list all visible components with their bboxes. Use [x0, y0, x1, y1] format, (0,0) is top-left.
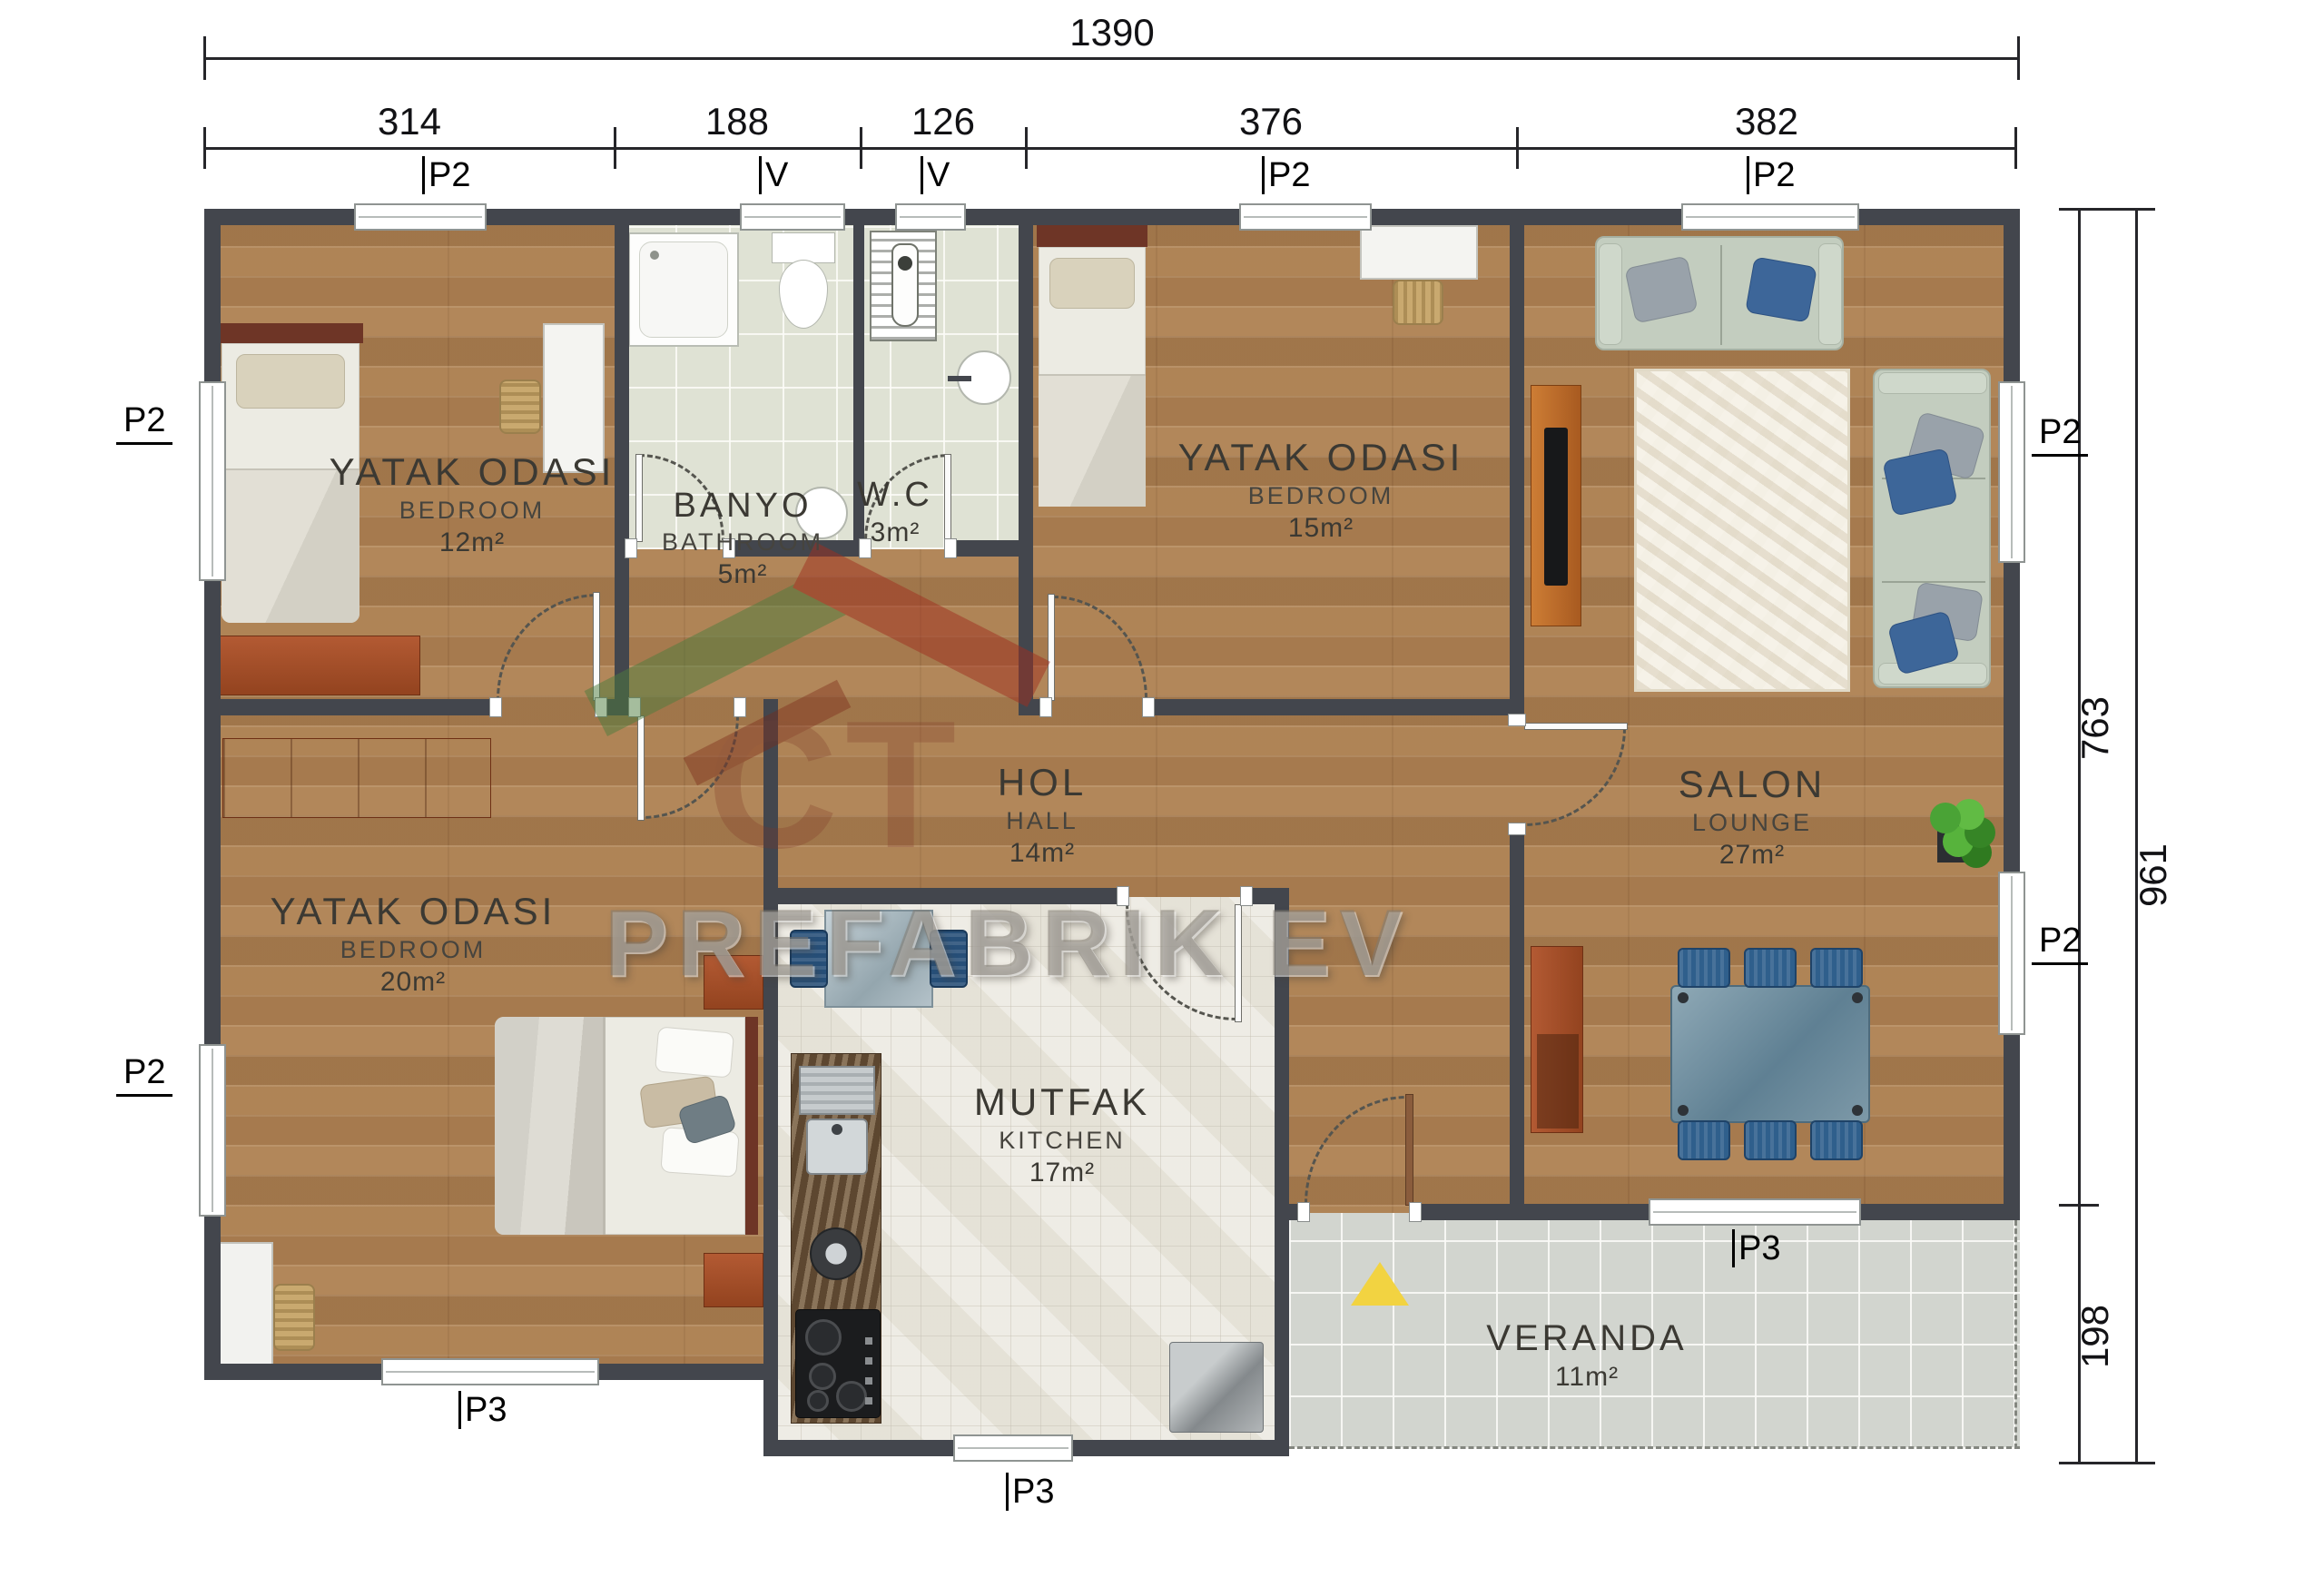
dim-tick — [614, 127, 616, 169]
marker-text: P2 — [1753, 156, 1795, 194]
bed-pillow — [655, 1026, 734, 1078]
wardrobe-icon — [222, 738, 491, 818]
window-label-p2-top: P2 — [1747, 156, 1795, 195]
dim-tick — [2014, 127, 2017, 169]
room-name-en: HALL — [888, 807, 1196, 835]
window — [199, 1044, 226, 1217]
sofa-armrest — [1599, 243, 1622, 345]
single-bed-icon — [1037, 225, 1147, 507]
door-swing-arc — [497, 594, 598, 699]
marker-tick-icon — [921, 156, 923, 194]
bed-pillow — [1049, 258, 1135, 309]
room-name-en: BEDROOM — [259, 936, 567, 964]
table-corner — [1678, 992, 1689, 1003]
window-label-p2-left: P2 — [116, 401, 172, 445]
window-label-p2-right: P2 — [2032, 922, 2088, 965]
dining-chair-icon — [1810, 1120, 1863, 1160]
room-label-veranda: VERANDA 11m² — [1433, 1318, 1741, 1393]
dim-top-total: 1390 — [1021, 11, 1203, 54]
door-jamb — [1508, 714, 1526, 726]
room-name: YATAK ODASI — [259, 890, 567, 933]
sofa-seam — [1720, 245, 1722, 345]
marker-text: P3 — [1738, 1229, 1780, 1267]
marker-text: V — [765, 156, 788, 194]
window — [953, 1434, 1073, 1462]
tap — [948, 376, 971, 381]
room-label-hall: HOL HALL 14m² — [888, 761, 1196, 869]
door-swing-arc — [1126, 904, 1236, 1020]
plant-icon — [1928, 797, 1990, 886]
window — [1649, 1198, 1861, 1226]
door-jamb — [1142, 697, 1155, 717]
rug-icon — [1634, 369, 1850, 692]
kettle-icon — [810, 1227, 862, 1280]
marker-text: P2 — [2039, 413, 2081, 451]
burner — [836, 1381, 867, 1412]
wall — [1510, 827, 1524, 1220]
dim-line-top-segments — [204, 147, 2016, 150]
drainboard — [799, 1066, 875, 1115]
room-name: HOL — [888, 761, 1196, 804]
door-jamb — [1117, 886, 1129, 906]
window — [199, 381, 226, 581]
window-label-p3-veranda: P3 — [1732, 1229, 1780, 1268]
dim-segment: 188 — [646, 100, 828, 143]
veranda-open-edge-right — [2014, 1220, 2017, 1449]
dim-segment: 376 — [1180, 100, 1362, 143]
window — [381, 1358, 599, 1385]
window-label-p2-right: P2 — [2032, 413, 2088, 457]
wall — [1019, 209, 1033, 715]
room-name: SALON — [1598, 763, 1906, 806]
veranda-triangle-icon — [1351, 1262, 1409, 1306]
plant-leaves — [1930, 803, 1961, 833]
room-name: YATAK ODASI — [318, 450, 626, 494]
washbasin-icon — [957, 350, 1011, 405]
bed-headboard — [743, 1017, 758, 1235]
room-area: 11m² — [1433, 1362, 1741, 1393]
table-corner — [1852, 992, 1863, 1003]
window — [740, 203, 845, 231]
room-label-salon: SALON LOUNGE 27m² — [1598, 763, 1906, 871]
marker-tick-icon — [1732, 1229, 1735, 1267]
marker-text: P3 — [465, 1391, 507, 1429]
sofa-pillow-blue — [1745, 256, 1817, 322]
wall — [1510, 209, 1524, 722]
chair-icon — [273, 1284, 315, 1351]
marker-text: P2 — [123, 401, 165, 439]
wall — [204, 699, 497, 715]
door-leaf — [1048, 594, 1055, 701]
room-name: W.C — [750, 476, 1040, 515]
double-bed-icon — [495, 1013, 758, 1238]
stove-knobs — [865, 1325, 872, 1405]
window — [1239, 203, 1372, 231]
nightstand-icon — [704, 955, 763, 1010]
room-name-en: BEDROOM — [318, 497, 626, 525]
window-label-p3-bottom: P3 — [458, 1391, 507, 1430]
window — [354, 203, 487, 231]
door-swing-arc — [1305, 1096, 1407, 1204]
bed-pillow — [236, 354, 345, 409]
wall — [2004, 209, 2020, 1220]
marker-tick-icon — [759, 156, 762, 194]
room-area: 14m² — [888, 838, 1196, 869]
dining-chair-icon — [1678, 948, 1730, 988]
dim-right-total: 961 — [2132, 821, 2175, 930]
desk-icon — [1360, 225, 1478, 280]
door-jamb — [1409, 1202, 1422, 1222]
wall — [763, 699, 778, 1456]
sideboard-icon — [1531, 946, 1583, 1133]
tv-stand-icon — [1531, 385, 1581, 626]
shower-tray-icon — [628, 232, 739, 347]
toilet-tank — [772, 232, 835, 263]
marker-tick-icon — [422, 156, 425, 194]
room-label-kitchen: MUTFAK KITCHEN 17m² — [908, 1080, 1216, 1188]
sofa-icon — [1873, 369, 1991, 688]
dim-segment: 126 — [852, 100, 1034, 143]
window — [895, 203, 966, 231]
room-area: 27m² — [1598, 840, 1906, 871]
door-jamb — [489, 697, 502, 717]
dim-tick — [2059, 208, 2155, 211]
burner — [807, 1390, 829, 1412]
marker-tick-icon — [1262, 156, 1265, 194]
window-label-p2-top: P2 — [422, 156, 470, 195]
stove-icon — [795, 1309, 881, 1418]
stool-icon — [499, 379, 541, 434]
burner — [805, 1319, 842, 1355]
dim-line-top-total — [204, 57, 2020, 60]
marker-tick-icon — [1006, 1473, 1009, 1511]
veranda-open-edge-bottom — [1289, 1446, 2020, 1449]
kitchen-sink-icon — [799, 1066, 875, 1182]
marker-text: P2 — [428, 156, 470, 194]
floor-plan-page: CT PREFABRIK EV YATAK ODASI BEDROOM 12m²… — [0, 0, 2324, 1587]
dim-right-upper: 763 — [2073, 674, 2117, 783]
dim-tick — [1516, 127, 1519, 169]
room-name-en: BEDROOM — [1167, 482, 1475, 510]
table-corner — [1852, 1105, 1863, 1116]
wall — [1275, 888, 1289, 1456]
door-jamb — [1297, 1202, 1310, 1222]
burner — [809, 1363, 836, 1390]
toilet-icon — [772, 232, 835, 332]
dining-chair-icon — [1744, 948, 1797, 988]
window — [1681, 203, 1859, 231]
dining-chair-icon — [1678, 1120, 1730, 1160]
sofa-pillow-gray — [1624, 255, 1698, 323]
dining-chair-icon — [1810, 948, 1863, 988]
door-jamb — [595, 697, 607, 717]
marker-text: V — [927, 156, 950, 194]
dim-segment: 382 — [1676, 100, 1857, 143]
room-area: 17m² — [908, 1158, 1216, 1188]
window — [1998, 381, 2025, 563]
room-area: 12m² — [318, 527, 626, 558]
dining-chair-icon — [1744, 1120, 1797, 1160]
chair-icon — [1393, 280, 1443, 325]
room-label-bedroom2: YATAK ODASI BEDROOM 15m² — [1167, 436, 1475, 544]
bed-duvet — [495, 1017, 606, 1235]
room-name: MUTFAK — [908, 1080, 1216, 1124]
dim-tick — [2059, 1462, 2155, 1464]
door-leaf — [1524, 723, 1628, 730]
door-swing-arc — [643, 715, 739, 819]
faucet — [832, 1124, 842, 1135]
toilet-bowl — [779, 260, 828, 329]
window — [1998, 872, 2025, 1035]
marker-tick-icon — [458, 1391, 461, 1429]
room-area: 15m² — [1167, 513, 1475, 544]
room-name: YATAK ODASI — [1167, 436, 1475, 479]
door-jamb — [1240, 886, 1253, 906]
bed-headboard — [1037, 225, 1147, 247]
doormat-icon — [1169, 1342, 1264, 1433]
sofa-armrest — [1818, 243, 1842, 345]
room-area: 20m² — [259, 967, 567, 998]
squat-toilet-icon — [870, 231, 937, 341]
door-jamb — [734, 697, 746, 717]
marker-text: P3 — [1012, 1473, 1054, 1511]
door-jamb — [1508, 823, 1526, 835]
marker-text: P2 — [1268, 156, 1310, 194]
window-label-v-top: V — [759, 156, 788, 195]
sofa-icon — [1595, 236, 1844, 350]
door-swing-arc — [1053, 596, 1147, 699]
nightstand-icon — [704, 1253, 763, 1307]
dining-table-icon — [1670, 985, 1870, 1123]
sofa-seam — [1882, 581, 1985, 583]
marker-tick-icon — [1747, 156, 1749, 194]
dim-segment: 314 — [319, 100, 500, 143]
squat-drain — [898, 256, 912, 271]
wall — [771, 888, 1126, 904]
window-label-p2-left: P2 — [116, 1053, 172, 1097]
room-label-bedroom3: YATAK ODASI BEDROOM 20m² — [259, 890, 567, 998]
window-label-v-top: V — [921, 156, 950, 195]
door-jamb — [1039, 697, 1052, 717]
table-corner — [1678, 1105, 1689, 1116]
room-area: 5m² — [588, 559, 897, 590]
wall — [1147, 699, 1524, 715]
door-jamb — [628, 697, 641, 717]
room-name-en: LOUNGE — [1598, 809, 1906, 837]
room-area: 3m² — [750, 517, 1040, 548]
sofa-pillow-blue — [1882, 448, 1957, 517]
marker-text: P2 — [123, 1053, 165, 1091]
window-label-p3-bottom: P3 — [1006, 1473, 1054, 1512]
dim-tick — [2017, 36, 2020, 80]
sideboard-icon — [219, 636, 420, 695]
marker-text: P2 — [2039, 922, 2081, 960]
bed-duvet — [1039, 374, 1146, 507]
window-label-p2-top: P2 — [1262, 156, 1310, 195]
kitchen-chair-icon — [930, 930, 968, 988]
dim-tick — [203, 127, 206, 169]
dim-tick — [2059, 1204, 2099, 1207]
tv-icon — [1544, 428, 1568, 586]
dim-tick — [203, 36, 206, 80]
room-label-bedroom1: YATAK ODASI BEDROOM 12m² — [318, 450, 626, 558]
kitchen-table-icon — [824, 910, 933, 1008]
sofa-armrest — [1878, 372, 1987, 394]
room-name-en: KITCHEN — [908, 1127, 1216, 1155]
door-leaf — [637, 715, 645, 821]
dresser-icon — [215, 1242, 273, 1378]
sideboard-shade — [1537, 1034, 1579, 1129]
room-label-wc: W.C 3m² — [750, 476, 1040, 548]
door-leaf — [1405, 1094, 1413, 1206]
shower-drain — [650, 251, 659, 260]
room-name: VERANDA — [1433, 1318, 1741, 1359]
dim-right-lower: 198 — [2073, 1282, 2117, 1391]
bed-headboard — [218, 323, 363, 343]
door-leaf — [1235, 904, 1242, 1022]
door-leaf — [593, 592, 600, 701]
kitchen-chair-icon — [790, 930, 828, 988]
